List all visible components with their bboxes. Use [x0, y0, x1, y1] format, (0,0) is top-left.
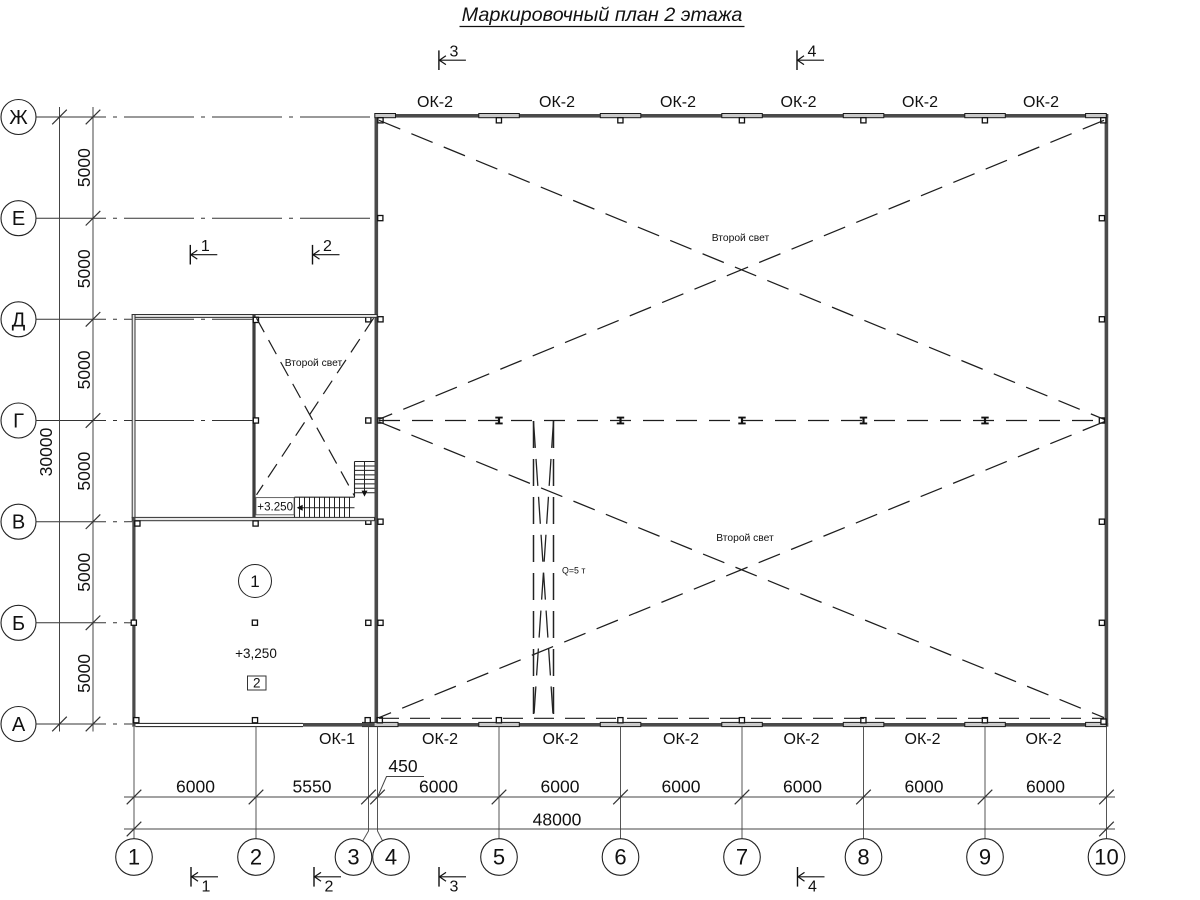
- svg-text:ОК-2: ОК-2: [417, 94, 453, 111]
- svg-text:ОК-2: ОК-2: [902, 94, 938, 111]
- svg-text:2: 2: [250, 845, 262, 870]
- svg-text:Д: Д: [12, 309, 26, 331]
- svg-text:3: 3: [449, 43, 458, 60]
- svg-text:ОК-2: ОК-2: [1026, 731, 1062, 748]
- svg-text:6000: 6000: [419, 777, 458, 797]
- svg-text:5: 5: [493, 845, 505, 870]
- svg-text:6000: 6000: [662, 777, 701, 797]
- svg-text:ОК-2: ОК-2: [543, 731, 579, 748]
- svg-text:ОК-2: ОК-2: [539, 94, 575, 111]
- svg-text:6000: 6000: [176, 777, 215, 797]
- svg-text:В: В: [12, 512, 25, 534]
- svg-text:ОК-2: ОК-2: [422, 731, 458, 748]
- svg-text:ОК-2: ОК-2: [663, 731, 699, 748]
- svg-text:Второй свет: Второй свет: [285, 358, 343, 369]
- svg-text:48000: 48000: [533, 810, 582, 830]
- svg-text:2: 2: [323, 238, 332, 255]
- svg-text:ОК-1: ОК-1: [319, 731, 355, 748]
- svg-text:2: 2: [325, 879, 334, 896]
- svg-text:ОК-2: ОК-2: [781, 94, 817, 111]
- svg-text:1: 1: [250, 572, 259, 591]
- svg-text:6000: 6000: [1026, 777, 1065, 797]
- svg-text:Маркировочный план 2 этажа: Маркировочный план 2 этажа: [462, 4, 743, 26]
- svg-text:1: 1: [201, 238, 210, 255]
- svg-text:8: 8: [857, 845, 869, 870]
- svg-text:А: А: [12, 714, 26, 736]
- svg-text:+3.250: +3.250: [257, 500, 293, 513]
- svg-text:450: 450: [388, 756, 417, 776]
- svg-text:+3,250: +3,250: [235, 646, 277, 661]
- svg-text:3: 3: [347, 845, 359, 870]
- svg-text:Второй свет: Второй свет: [716, 533, 774, 544]
- svg-text:2: 2: [253, 676, 261, 691]
- svg-text:5000: 5000: [74, 148, 94, 187]
- svg-text:6000: 6000: [905, 777, 944, 797]
- svg-text:5550: 5550: [293, 777, 332, 797]
- svg-text:ОК-2: ОК-2: [1023, 94, 1059, 111]
- svg-text:4: 4: [385, 845, 397, 870]
- svg-text:3: 3: [450, 879, 459, 896]
- svg-text:Второй свет: Второй свет: [712, 233, 770, 244]
- svg-text:1: 1: [128, 845, 140, 870]
- svg-text:5000: 5000: [74, 249, 94, 288]
- svg-text:30000: 30000: [36, 427, 56, 476]
- svg-text:Б: Б: [12, 613, 25, 635]
- svg-text:ОК-2: ОК-2: [784, 731, 820, 748]
- svg-text:6000: 6000: [783, 777, 822, 797]
- svg-text:1: 1: [202, 879, 211, 896]
- svg-text:4: 4: [808, 879, 817, 896]
- svg-text:5000: 5000: [74, 350, 94, 389]
- svg-text:5000: 5000: [74, 553, 94, 592]
- svg-text:Ж: Ж: [9, 107, 28, 129]
- svg-text:6000: 6000: [541, 777, 580, 797]
- svg-text:9: 9: [979, 845, 991, 870]
- svg-text:ОК-2: ОК-2: [660, 94, 696, 111]
- svg-text:4: 4: [808, 43, 817, 60]
- svg-text:Г: Г: [13, 411, 24, 433]
- svg-text:Q=5 т: Q=5 т: [562, 566, 585, 576]
- svg-text:10: 10: [1094, 845, 1118, 870]
- svg-text:5000: 5000: [74, 451, 94, 490]
- svg-text:5000: 5000: [74, 654, 94, 693]
- svg-text:7: 7: [736, 845, 748, 870]
- svg-text:Е: Е: [12, 208, 25, 230]
- svg-text:ОК-2: ОК-2: [905, 731, 941, 748]
- svg-text:6: 6: [614, 845, 626, 870]
